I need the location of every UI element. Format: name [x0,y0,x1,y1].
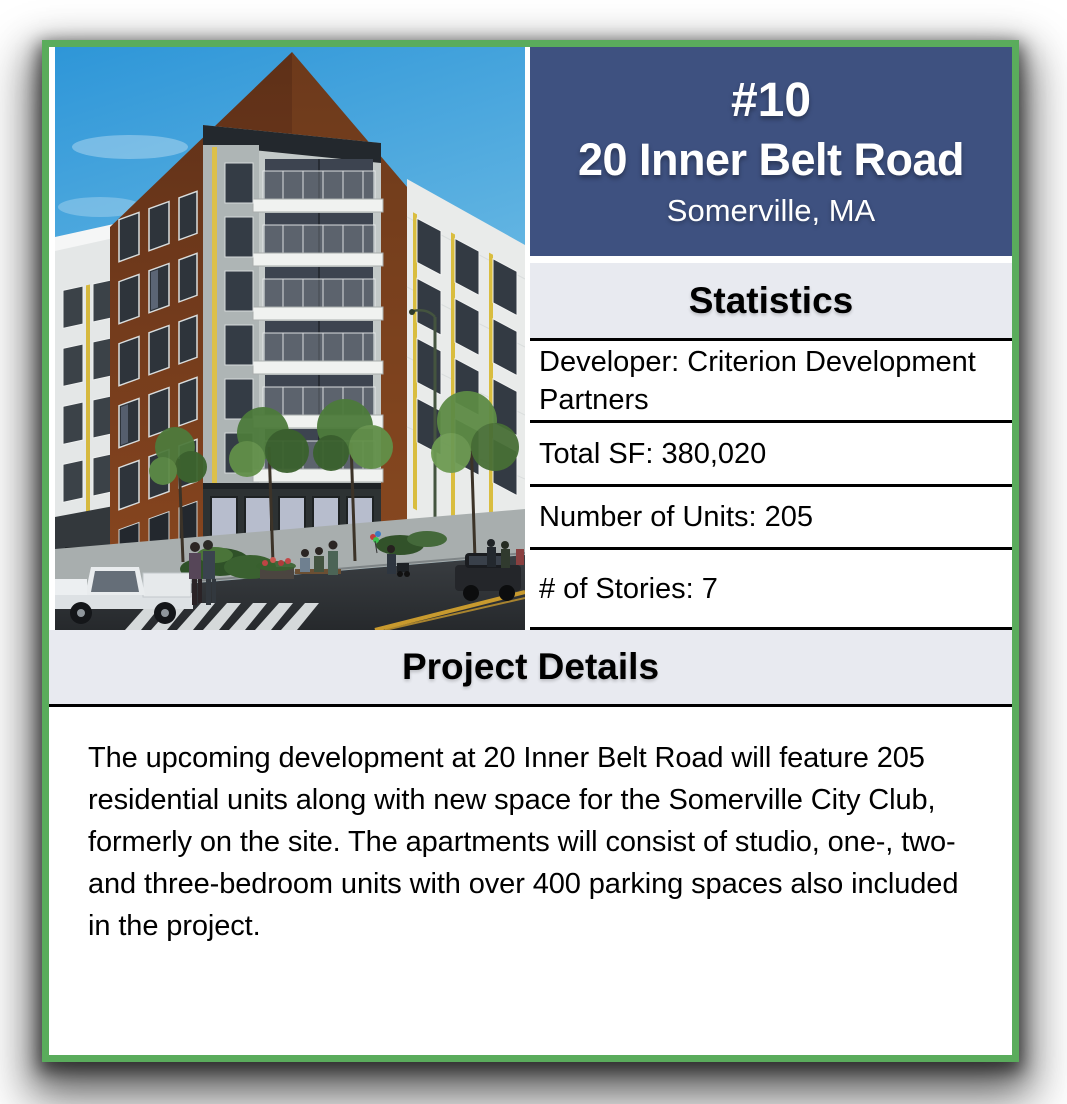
card-header: #10 20 Inner Belt Road Somerville, MA [530,47,1012,256]
project-details-text: The upcoming development at 20 Inner Bel… [88,737,972,947]
project-location: Somerville, MA [530,189,1012,233]
project-card: #10 20 Inner Belt Road Somerville, MA St… [42,40,1019,1062]
stat-row-stories: # of Stories: 7 [530,550,1012,630]
rank-label: #10 [530,72,1012,130]
page-background: { "colors": { "border_green": "#5aac5c",… [0,0,1067,1104]
stat-row-units: Number of Units: 205 [530,487,1012,550]
stat-row-developer: Developer: Criterion Development Partner… [530,341,1012,423]
info-column: #10 20 Inner Belt Road Somerville, MA St… [530,47,1012,630]
card-inner: #10 20 Inner Belt Road Somerville, MA St… [49,47,1012,1055]
project-title: 20 Inner Belt Road [530,132,1012,187]
project-details-heading: Project Details [49,630,1012,707]
building-rendering-image [55,47,525,630]
stat-row-total-sf: Total SF: 380,020 [530,423,1012,487]
statistics-heading: Statistics [530,263,1012,341]
building-rendering-svg [55,47,525,630]
